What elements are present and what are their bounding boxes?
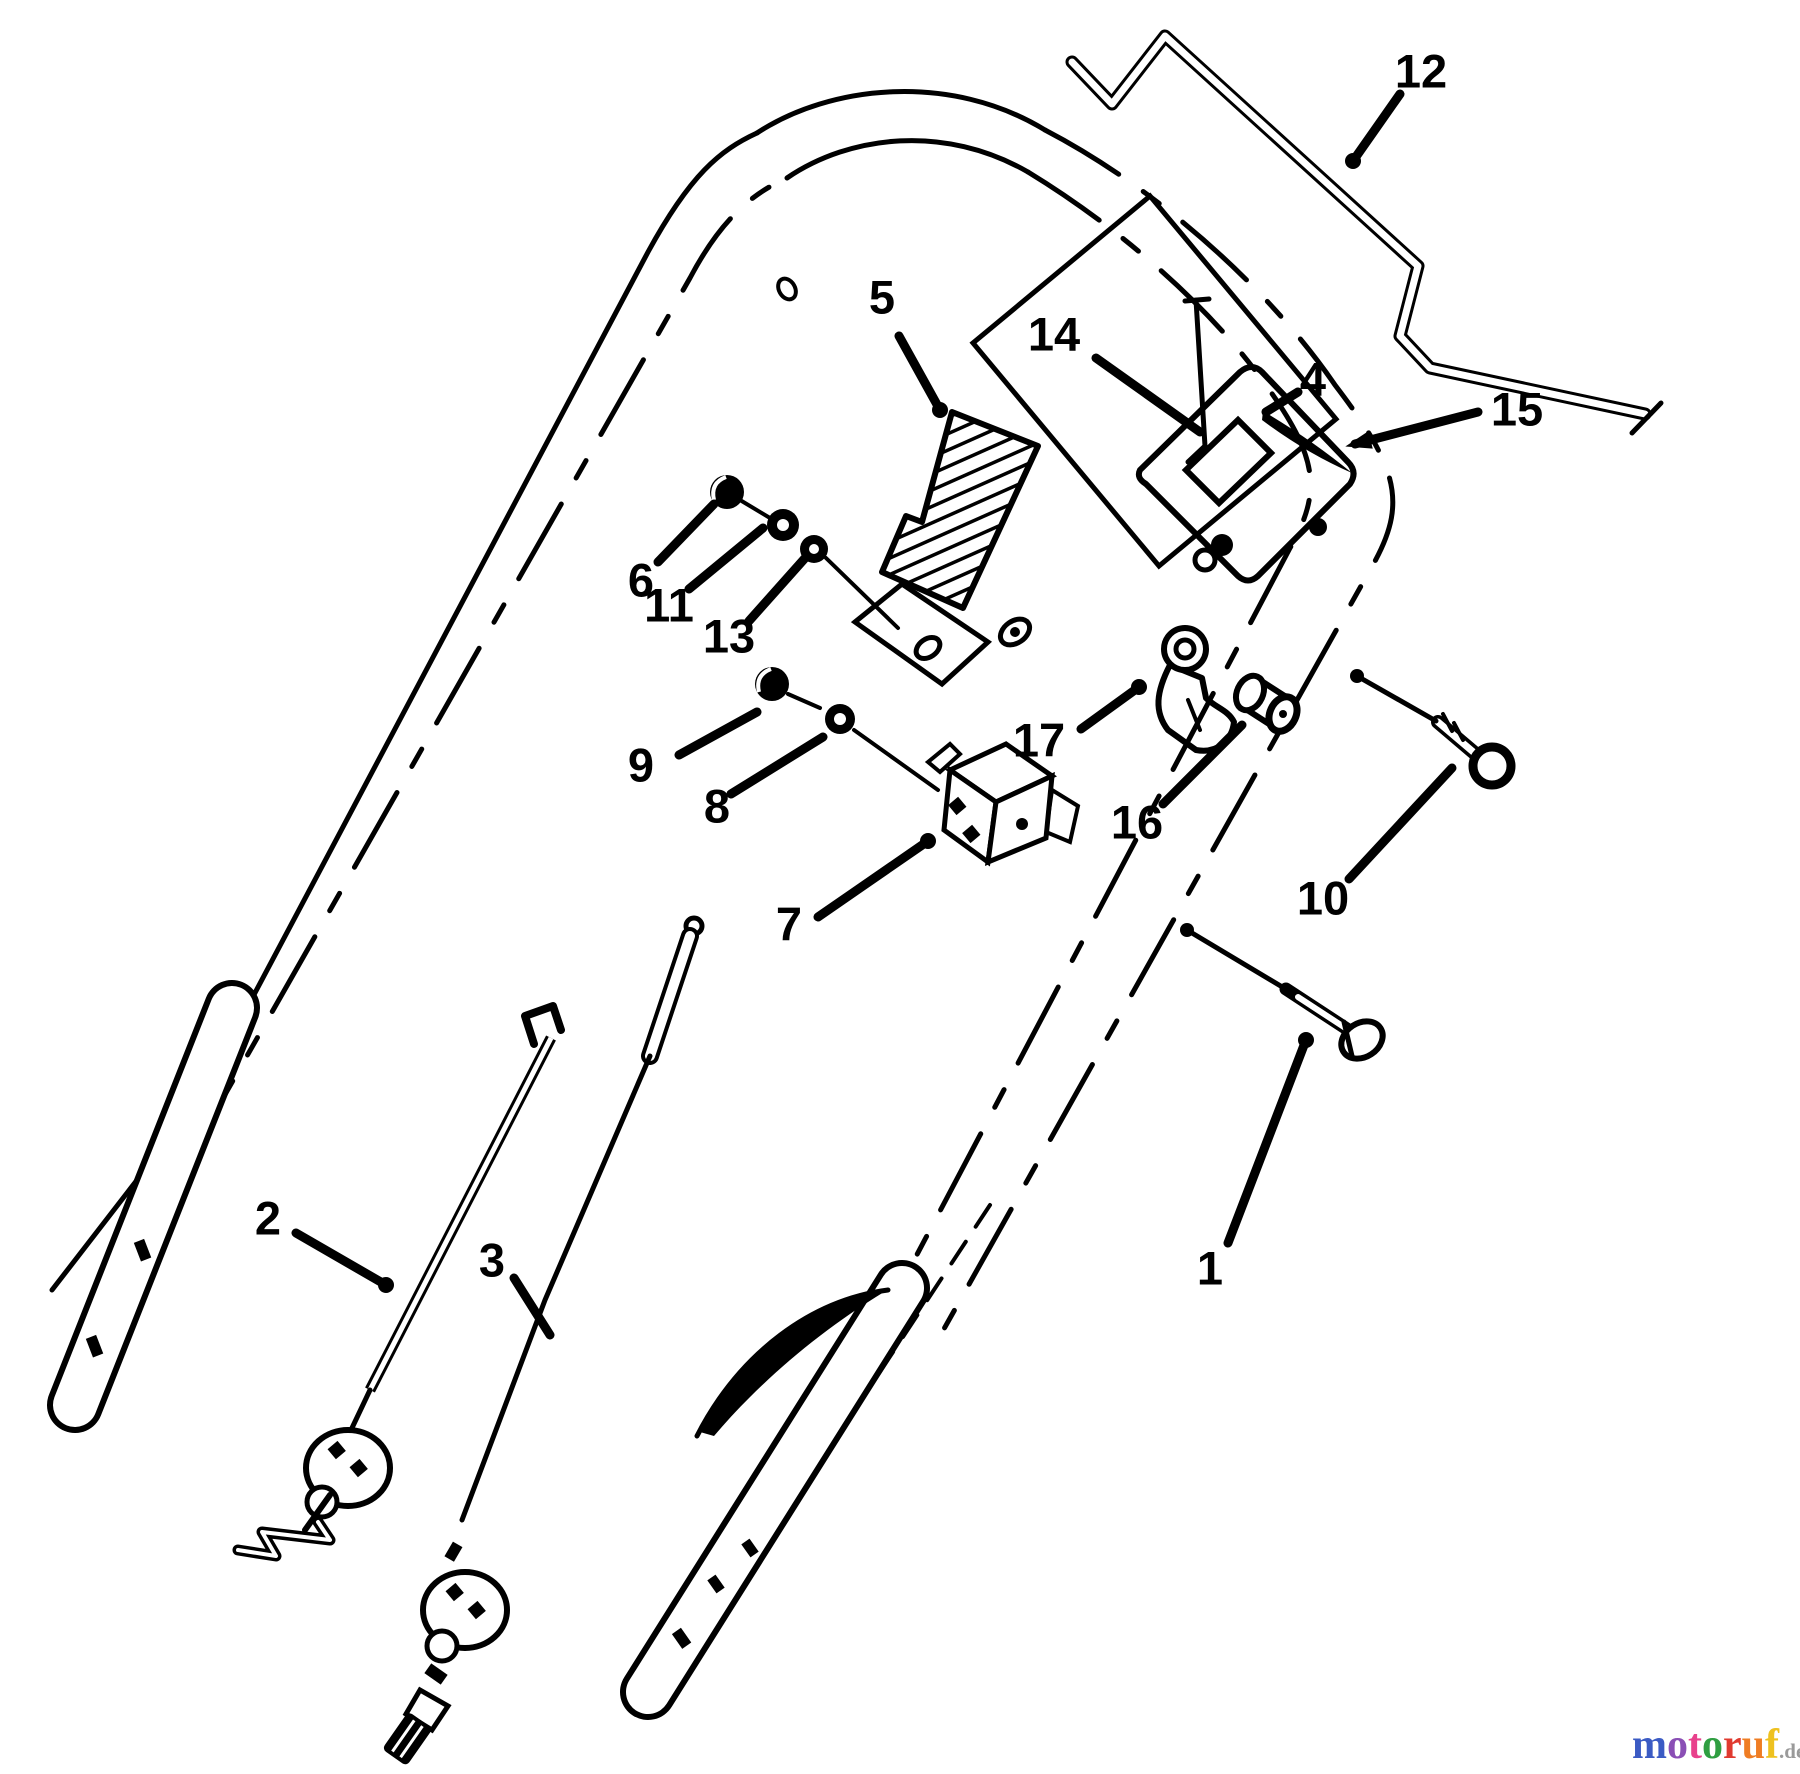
watermark-letter: o: [1702, 1722, 1723, 1768]
callout-label-9: 9: [628, 739, 654, 792]
part-12-rod-drawing: [1072, 36, 1661, 433]
leader-line-10: [1349, 768, 1452, 879]
assembly-dot-1: [1180, 923, 1194, 937]
leader-line-13: [749, 557, 806, 621]
leader-line-7: [818, 841, 928, 917]
leader-dot-5: [932, 402, 948, 418]
part-5-lever-drawing: [855, 412, 1038, 684]
leader-dot-2: [378, 1277, 394, 1293]
leader-line-1: [1228, 1040, 1306, 1243]
callout-label-17: 17: [1013, 714, 1065, 767]
leader-line-9: [679, 712, 757, 755]
part-17-pawl-drawing: [1158, 628, 1234, 751]
callout-label-11: 11: [644, 579, 694, 632]
callout-label-8: 8: [704, 780, 730, 833]
leader-line-5: [899, 336, 940, 410]
leader-line-14: [1096, 358, 1200, 432]
watermark-letter: t: [1688, 1722, 1702, 1768]
leader-line-15: [1355, 412, 1478, 444]
leader-line-11: [689, 528, 763, 589]
assembly-line-2: [1357, 676, 1436, 721]
callout-label-14: 14: [1028, 308, 1080, 361]
fasteners-9-8-drawing: [755, 667, 938, 790]
leader-arrow-15: [1345, 431, 1372, 448]
callout-label-7: 7: [776, 898, 802, 951]
assembly-line-1: [1187, 930, 1284, 988]
callout-label-12: 12: [1395, 45, 1447, 98]
leader-dot-1: [1298, 1032, 1314, 1048]
leader-line-2: [296, 1233, 386, 1285]
leader-line-8: [731, 737, 823, 794]
leader-line-6: [658, 504, 714, 562]
watermark-letter: f: [1765, 1722, 1779, 1768]
callout-label-3: 3: [479, 1234, 505, 1287]
callout-label-15: 15: [1491, 383, 1543, 436]
callout-label-16: 16: [1111, 796, 1163, 849]
callout-label-13: 13: [703, 610, 755, 663]
exploded-parts-diagram: 1234567891011121314151617: [0, 0, 1800, 1774]
leader-line-17: [1081, 687, 1139, 729]
leader-line-12: [1353, 94, 1400, 161]
watermark-suffix: .de: [1779, 1739, 1800, 1763]
leader-dot-7: [920, 833, 936, 849]
watermark-letter: r: [1723, 1722, 1742, 1768]
right-grip-tube-drawing: [648, 1205, 990, 1705]
leader-dot-12: [1345, 153, 1361, 169]
watermark-letter: u: [1742, 1722, 1765, 1768]
callout-label-4: 4: [1300, 353, 1326, 406]
watermark-letter: o: [1667, 1722, 1688, 1768]
callout-label-5: 5: [869, 271, 895, 324]
left-grip-tube-drawing: [75, 1008, 232, 1405]
parts-diagram-page: 1234567891011121314151617 motoruf.de: [0, 0, 1800, 1774]
watermark-letter: m: [1632, 1722, 1667, 1768]
callout-label-2: 2: [255, 1192, 281, 1245]
assembly-dot-2: [1350, 669, 1364, 683]
leader-dot-17: [1131, 679, 1147, 695]
handle-hole: [775, 275, 800, 302]
detail-box-drawing: [973, 196, 1336, 566]
motoruf-watermark[interactable]: motoruf.de: [1632, 1722, 1800, 1768]
callout-label-10: 10: [1297, 872, 1349, 925]
callout-label-1: 1: [1197, 1242, 1223, 1295]
